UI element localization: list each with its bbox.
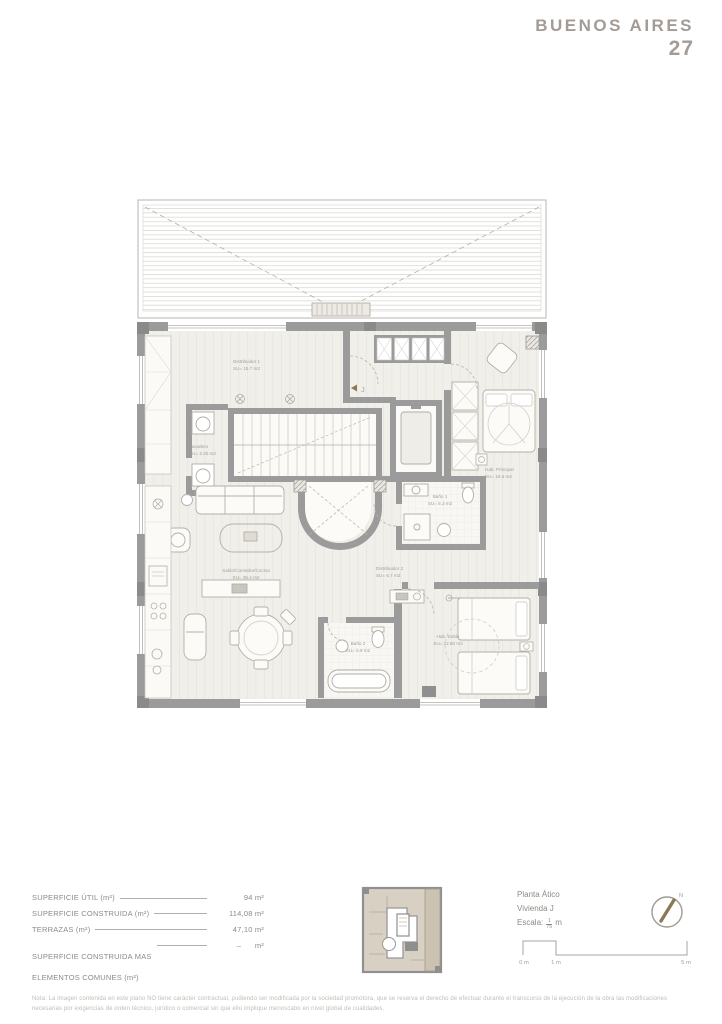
leader-line <box>120 893 207 899</box>
row-label: TERRAZAS (m²) <box>32 925 90 936</box>
brand-name: BUENOS AIRES <box>535 16 694 36</box>
footnote: Nota: La imagen contenida en este plano … <box>32 995 692 1014</box>
compass: N <box>646 888 692 934</box>
staircase <box>234 414 376 476</box>
table-row: SUPERFICIE CONSTRUIDA MAS ELEMENTOS COMU… <box>32 941 264 995</box>
room-label-bano2: Baño 2 <box>351 641 366 646</box>
entrance-label: J <box>361 385 365 394</box>
chaise <box>184 614 206 660</box>
row-value: 114,08 m² <box>212 909 264 920</box>
elevator <box>390 400 442 478</box>
scale-bar: 0 m 1 m 5 m <box>517 937 695 969</box>
leader-line <box>95 925 207 931</box>
bathroom-2 <box>324 623 394 698</box>
room-label-salon: Salón/Comedor/Cocina <box>222 568 270 573</box>
table-row: SUPERFICIE ÚTIL (m²) 94 m² <box>32 893 264 904</box>
room-label-hab-doble: Hab. Doble <box>437 634 460 639</box>
svg-text:1 m: 1 m <box>551 960 561 966</box>
kitchen-strip <box>145 336 171 698</box>
areas-table: SUPERFICIE ÚTIL (m²) 94 m² SUPERFICIE CO… <box>32 893 264 1000</box>
floor-plan: J Distribuidor 1 SU= 15.7 m2 Lavadero SU… <box>128 186 552 724</box>
svg-text:SU= 16.5 m2: SU= 16.5 m2 <box>485 474 512 479</box>
table-row: SUPERFICIE CONSTRUIDA (m²) 114,08 m² <box>32 909 264 920</box>
row-label: SUPERFICIE ÚTIL (m²) <box>32 893 115 904</box>
svg-text:SU= 5.9 m2: SU= 5.9 m2 <box>346 648 371 653</box>
svg-text:5 m: 5 m <box>681 960 691 966</box>
room-label-distribuidor2: Distribuidor 2 <box>376 566 404 571</box>
svg-text:SU= 12.80 m2: SU= 12.80 m2 <box>433 641 463 646</box>
row-label: SUPERFICIE CONSTRUIDA (m²) <box>32 909 149 920</box>
north-label: N <box>679 893 683 899</box>
brochure-page: BUENOS AIRES 27 <box>0 0 722 1024</box>
room-label-lavadero: Lavadero <box>189 444 209 449</box>
floor-name: Planta Ático <box>517 888 562 902</box>
row-value: 47,10 m² <box>212 925 264 936</box>
row-label: SUPERFICIE CONSTRUIDA MAS ELEMENTOS COMU… <box>32 941 152 995</box>
room-label-distribuidor1: Distribuidor 1 <box>233 359 261 364</box>
storage-cells <box>374 335 446 363</box>
sofa <box>196 486 284 514</box>
scale-text: Escala: 175 m <box>517 916 562 930</box>
row-value: 94 m² <box>212 893 264 904</box>
svg-text:0 m: 0 m <box>519 960 529 966</box>
table-row: TERRAZAS (m²) 47,10 m² <box>32 925 264 936</box>
terrace <box>138 200 546 318</box>
svg-text:SU= 6.7 m2: SU= 6.7 m2 <box>376 573 401 578</box>
key-plan <box>353 882 449 978</box>
brand-logo: BUENOS AIRES 27 <box>535 16 694 61</box>
row-value: – m² <box>212 941 264 952</box>
unit-name: Vivienda J <box>517 902 562 916</box>
room-label-bano1: Baño 1 <box>433 494 448 499</box>
leader-line <box>157 941 207 947</box>
leader-line <box>154 909 207 915</box>
svg-text:SU= 35.4 m2: SU= 35.4 m2 <box>233 575 260 580</box>
scale-fraction: 175 <box>546 919 552 930</box>
brand-number: 27 <box>535 37 694 61</box>
terrace-step <box>312 303 370 316</box>
svg-text:SU= 2.20 m2: SU= 2.20 m2 <box>189 451 216 456</box>
plan-info: Planta Ático Vivienda J Escala: 175 m <box>517 888 562 930</box>
svg-text:SU= 5.3 m2: SU= 5.3 m2 <box>428 501 453 506</box>
svg-text:SU= 15.7 m2: SU= 15.7 m2 <box>233 366 260 371</box>
room-label-hab-principal: Hab. Principal <box>485 467 514 472</box>
